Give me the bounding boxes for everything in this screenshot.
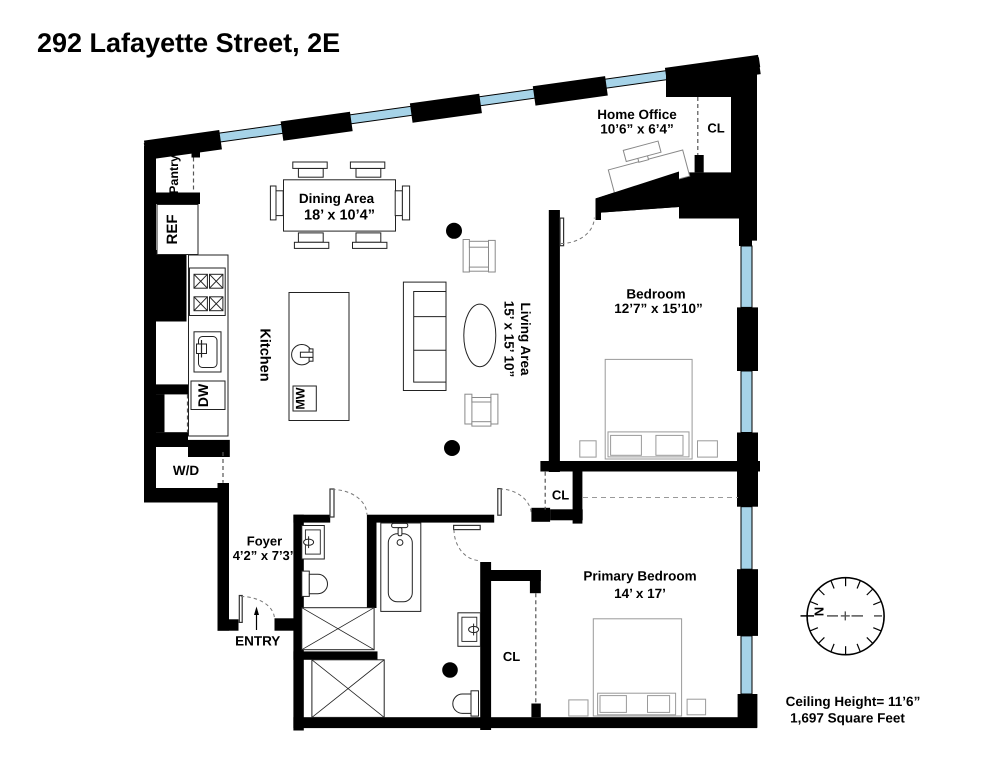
svg-text:Living Area: Living Area xyxy=(518,302,533,376)
svg-text:ENTRY: ENTRY xyxy=(235,634,280,649)
svg-text:Home Office: Home Office xyxy=(597,107,677,122)
svg-text:Primary Bedroom: Primary Bedroom xyxy=(583,569,696,584)
svg-text:Ceiling Height= 11’6”: Ceiling Height= 11’6” xyxy=(786,694,921,709)
svg-text:Bedroom: Bedroom xyxy=(626,287,685,302)
svg-text:4’2” x 7’3”: 4’2” x 7’3” xyxy=(233,548,297,563)
svg-text:REF: REF xyxy=(164,215,181,245)
svg-text:Kitchen: Kitchen xyxy=(257,328,273,381)
svg-text:12’7” x 15’10”: 12’7” x 15’10” xyxy=(614,301,703,316)
svg-text:Dining Area: Dining Area xyxy=(299,191,375,206)
svg-text:18’ x 10’4”: 18’ x 10’4” xyxy=(304,208,375,224)
svg-text:W/D: W/D xyxy=(173,463,199,478)
svg-text:DW: DW xyxy=(195,383,211,407)
svg-text:1,697 Square Feet: 1,697 Square Feet xyxy=(790,711,905,726)
svg-text:CL: CL xyxy=(707,121,724,136)
svg-text:15’ x 15’ 10”: 15’ x 15’ 10” xyxy=(502,301,517,378)
svg-text:292 Lafayette Street, 2E: 292 Lafayette Street, 2E xyxy=(37,28,340,58)
svg-text:14’ x 17’: 14’ x 17’ xyxy=(614,586,666,601)
svg-text:Pantry: Pantry xyxy=(167,155,181,194)
svg-text:Foyer: Foyer xyxy=(247,534,282,549)
svg-text:CL: CL xyxy=(503,649,520,664)
svg-text:MW: MW xyxy=(294,387,308,409)
svg-text:N: N xyxy=(812,607,827,616)
svg-text:10’6” x 6’4”: 10’6” x 6’4” xyxy=(600,122,674,137)
svg-text:CL: CL xyxy=(552,488,569,503)
